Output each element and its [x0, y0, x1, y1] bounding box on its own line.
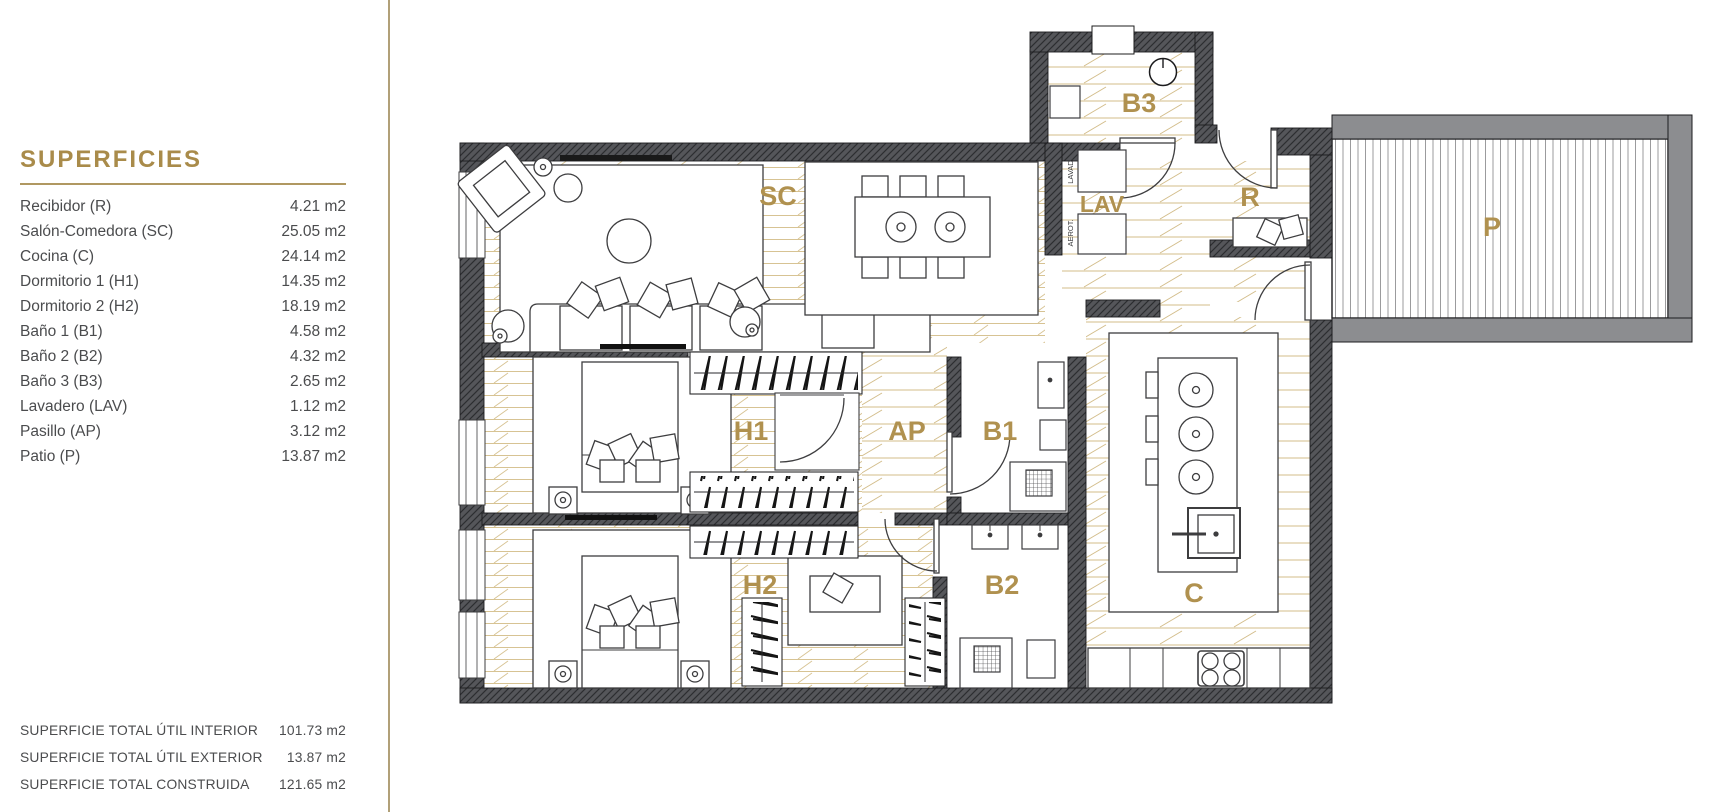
tv-h2	[565, 515, 657, 520]
aerothermal-unit	[1078, 214, 1126, 254]
room-label-p: P	[1483, 212, 1501, 242]
entry-door	[1271, 130, 1277, 188]
room-label-b1: B1	[983, 416, 1018, 446]
washer	[1078, 150, 1126, 192]
aerot-label: AEROT.	[1066, 219, 1075, 246]
tv-h1	[600, 344, 686, 349]
room-label-h2: H2	[743, 570, 778, 600]
room-label-r: R	[1240, 182, 1260, 212]
room-label-b3: B3	[1122, 88, 1157, 118]
floor-plan: LAVAD. AEROT.	[0, 0, 1735, 812]
b2-toilet	[1027, 640, 1055, 678]
bath3-fixtures	[1050, 86, 1080, 118]
coffee-table	[607, 219, 651, 263]
floorplan-page: { "colors": { "accent_gold": "#a98b4a", …	[0, 0, 1735, 812]
h1-bed	[582, 362, 678, 492]
b1-cabinet	[1040, 420, 1066, 450]
b1-sink	[1038, 362, 1064, 408]
room-label-b2: B2	[985, 570, 1020, 600]
patio	[1332, 115, 1692, 342]
room-label-sc: SC	[759, 181, 797, 211]
top-window-bar	[560, 155, 672, 161]
washer-label: LAVAD.	[1066, 158, 1075, 184]
room-label-h1: H1	[734, 416, 769, 446]
room-label-ap: AP	[888, 416, 926, 446]
b3-sink	[1050, 86, 1080, 118]
dining-table	[855, 197, 990, 257]
room-label-lav: LAV	[1080, 191, 1125, 217]
room-label-c: C	[1184, 578, 1204, 608]
dining-furniture	[805, 162, 1038, 315]
hall-bench	[1233, 215, 1307, 247]
